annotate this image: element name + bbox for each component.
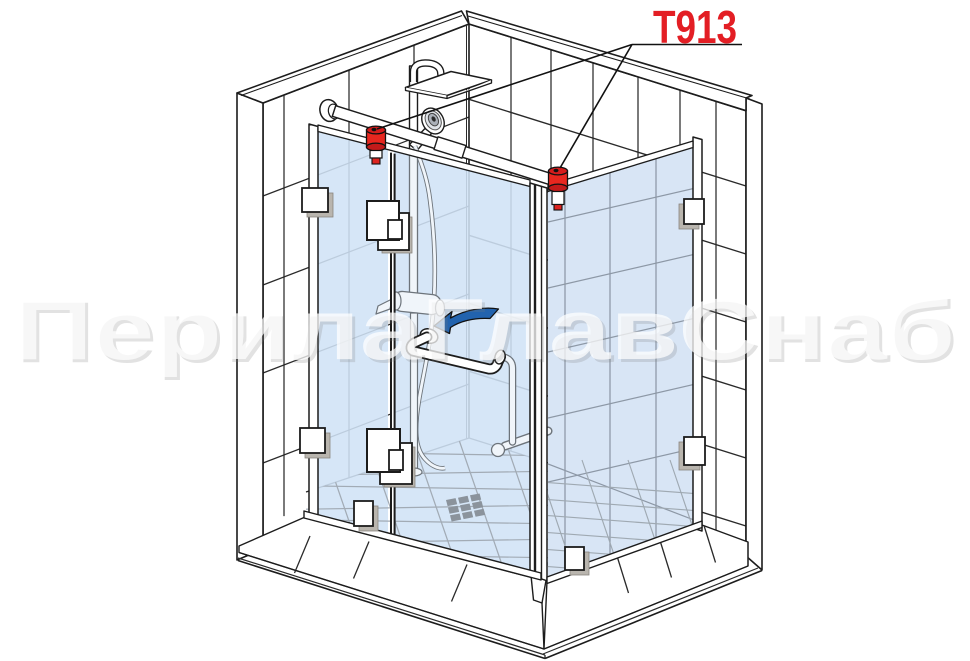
svg-text:T913: T913	[653, 1, 737, 53]
svg-text:ПерилаГлавСнаб: ПерилаГлавСнаб	[13, 282, 955, 378]
